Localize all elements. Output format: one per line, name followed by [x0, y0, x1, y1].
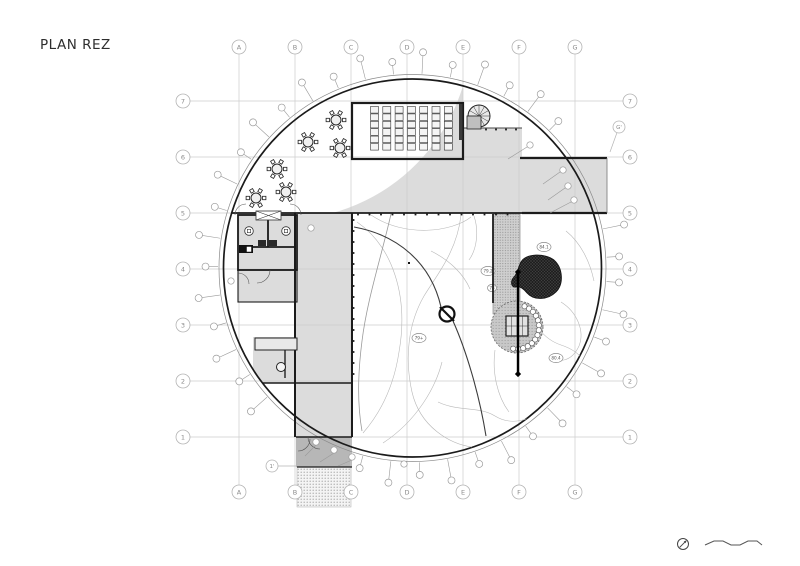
detail-marker-bubble	[196, 231, 203, 238]
floor-plan-canvas: AABBCCDDEEFFGG77665544332211G'1' 79.2787…	[0, 0, 800, 566]
column-tick	[353, 230, 355, 232]
classroom-desk	[420, 121, 428, 128]
classroom-desk	[432, 121, 440, 128]
classroom-desk	[444, 129, 452, 136]
sink-inset	[247, 247, 252, 253]
floor-fill-layer	[232, 86, 607, 507]
floor-plan-drawing: AABBCCDDEEFFGG77665544332211G'1' 79.2787…	[0, 0, 800, 566]
column-tick	[484, 214, 486, 216]
grid-bubble-label: 2	[181, 377, 185, 385]
grid-bubble-label: G	[572, 488, 577, 496]
detail-marker-bubble	[389, 58, 396, 65]
terrain-contour-line	[431, 251, 470, 289]
entry-vestibule-slab	[296, 437, 352, 467]
column-tick	[505, 129, 507, 131]
round-table	[281, 187, 291, 197]
terrain-contour-line	[469, 216, 477, 260]
pebble-circle	[536, 328, 541, 333]
detail-marker-bubble	[508, 457, 515, 464]
note-bubble	[349, 454, 355, 460]
round-table	[331, 115, 341, 125]
detail-marker-bubble	[356, 465, 363, 472]
column-tick	[403, 214, 405, 216]
classroom-desk	[371, 114, 379, 121]
classroom-desk	[383, 121, 391, 128]
chair	[330, 125, 335, 130]
dining-table-group	[246, 189, 266, 208]
classroom-desk	[407, 114, 415, 121]
chair	[338, 111, 343, 116]
chair	[302, 133, 307, 138]
column-tick	[392, 214, 394, 216]
detail-marker-bubble	[416, 471, 423, 478]
grid-bubble-label: B	[293, 43, 297, 51]
detail-marker-bubble	[621, 221, 628, 228]
terrain-contour-line	[556, 302, 581, 360]
chair	[342, 139, 347, 144]
classroom-desk	[444, 136, 452, 143]
column-tick	[353, 252, 355, 254]
column-tick	[507, 214, 509, 216]
grid-bubble-label: A	[237, 43, 242, 51]
chair	[334, 139, 339, 144]
round-table	[303, 137, 313, 147]
dining-table-group	[276, 183, 296, 202]
chair	[258, 203, 263, 208]
classroom-desk	[395, 114, 403, 121]
column-tick	[353, 329, 355, 331]
column-tick	[461, 214, 463, 216]
column-or-stool	[277, 363, 286, 372]
grid-bubble-label: F	[517, 43, 521, 51]
column-tick	[353, 373, 355, 375]
chair	[280, 183, 285, 188]
detail-marker-bubble	[598, 370, 605, 377]
classroom-desk	[420, 144, 428, 151]
classroom-desk	[407, 121, 415, 128]
classroom-desk	[371, 144, 379, 151]
detail-marker-bubble	[210, 323, 217, 330]
aux-grid-bubble-label: 1'	[269, 464, 274, 470]
column-tick	[353, 296, 355, 298]
grid-bubble-label: F	[517, 488, 521, 496]
chair	[279, 174, 284, 179]
chair	[310, 133, 315, 138]
column-tick	[353, 307, 355, 309]
spot-level-label: 79+	[415, 336, 424, 341]
classroom-desk	[420, 129, 428, 136]
chair	[302, 147, 307, 152]
column-tick	[353, 362, 355, 364]
detail-marker-bubble	[559, 420, 566, 427]
column-tick	[438, 214, 440, 216]
detail-marker-bubble	[529, 433, 536, 440]
main-path-contour	[354, 227, 441, 307]
classroom-desk	[444, 114, 452, 121]
note-bubble	[527, 142, 533, 148]
classroom-duct-hatch	[459, 104, 463, 140]
classroom-desk	[444, 144, 452, 151]
classroom-desk	[395, 107, 403, 114]
column-tick	[353, 318, 355, 320]
grid-bubble-label: 1	[628, 433, 632, 441]
detail-marker-bubble	[247, 408, 254, 415]
chair	[267, 167, 270, 170]
main-path-contour	[453, 321, 486, 436]
classroom-desk	[407, 144, 415, 151]
classroom-desk	[432, 114, 440, 121]
classroom-desk	[407, 129, 415, 136]
page-title: PLAN REZ	[40, 37, 111, 53]
classroom-desk	[407, 107, 415, 114]
classroom-desk	[371, 121, 379, 128]
note-bubble	[401, 461, 407, 467]
classroom-desk	[432, 136, 440, 143]
dining-table-group	[330, 139, 350, 158]
column-tick	[353, 340, 355, 342]
column-tick	[357, 214, 359, 216]
classroom-desk	[395, 136, 403, 143]
grid-bubble-label: G	[572, 43, 577, 51]
grid-bubble-label: 1	[181, 433, 185, 441]
detail-marker-bubble	[298, 79, 305, 86]
chair	[330, 111, 335, 116]
courtyard-layer: 79.27879+84.180.4	[354, 214, 594, 447]
aux-grid-bubble-label: G'	[616, 125, 622, 131]
note-bubble	[565, 183, 571, 189]
note-bubble	[331, 447, 337, 453]
detail-marker-bubble	[620, 311, 627, 318]
classroom-desk	[383, 129, 391, 136]
detail-marker-bubble	[506, 82, 513, 89]
column-tick	[449, 214, 451, 216]
spot-level-label: 84.1	[539, 245, 549, 250]
chair	[258, 189, 263, 194]
detail-marker-bubble	[278, 104, 285, 111]
detail-marker-bubble	[616, 253, 623, 260]
detail-marker-bubble	[449, 61, 456, 68]
round-table	[272, 164, 282, 174]
chair	[276, 190, 279, 193]
classroom-desk	[444, 121, 452, 128]
chair	[271, 160, 276, 165]
chair	[280, 197, 285, 202]
chair	[326, 118, 329, 121]
classroom-desk	[444, 107, 452, 114]
grid-bubble-label: 3	[628, 321, 632, 329]
column-tick	[369, 214, 371, 216]
wash-basin	[282, 227, 291, 236]
column-tick	[380, 214, 382, 216]
detail-marker-bubble	[237, 149, 244, 156]
detail-marker-bubble	[385, 479, 392, 486]
chair	[288, 183, 293, 188]
detail-marker-bubble	[213, 355, 220, 362]
grid-bubble-label: 3	[181, 321, 185, 329]
pebble-circle	[521, 346, 526, 351]
terrain-contour-line	[438, 402, 546, 421]
detail-marker-bubble	[537, 91, 544, 98]
chair	[343, 118, 346, 121]
column-tick	[426, 214, 428, 216]
detail-marker-bubble	[195, 295, 202, 302]
grid-bubble-label: D	[404, 488, 409, 496]
column-tick	[515, 129, 517, 131]
round-table	[335, 143, 345, 153]
classroom-desk	[432, 129, 440, 136]
classroom-desk	[383, 114, 391, 121]
note-bubble	[313, 439, 319, 445]
stair-landing-box	[467, 116, 481, 129]
column-tick	[353, 351, 355, 353]
spot-level-label: 79.2	[483, 269, 493, 274]
grid-bubble-label: B	[293, 488, 297, 496]
grid-bubble-label: E	[461, 488, 465, 496]
detail-marker-bubble	[615, 279, 622, 286]
classroom-desk	[383, 107, 391, 114]
north-arrow-and-scalebar	[678, 539, 763, 550]
grid-bubble-label: 7	[181, 97, 185, 105]
terrain-contour-line	[359, 214, 391, 431]
east-wing-slab	[520, 158, 607, 213]
classroom-desk	[383, 136, 391, 143]
grid-bubble-label: 5	[181, 209, 185, 217]
classroom-desk	[371, 129, 379, 136]
classroom-desk	[395, 129, 403, 136]
pebble-circle	[511, 346, 516, 351]
detail-marker-bubble	[357, 55, 364, 62]
detail-marker-bubble	[481, 61, 488, 68]
terrain-contour-line	[383, 362, 442, 443]
chair	[284, 167, 287, 170]
section-cut-marker	[515, 371, 521, 377]
column-tick	[353, 241, 355, 243]
detail-marker-bubble	[214, 171, 221, 178]
dining-table-group	[326, 111, 346, 130]
grid-bubble-label: C	[349, 488, 354, 496]
classroom-desk	[407, 136, 415, 143]
grid-bubble-label: 6	[181, 153, 185, 161]
grid-bubble-label: 4	[628, 265, 632, 273]
classroom-desk	[383, 144, 391, 151]
chair	[330, 146, 333, 149]
chair	[271, 174, 276, 179]
column-tick	[353, 219, 355, 221]
pebble-circle	[535, 318, 540, 323]
note-bubble	[560, 167, 566, 173]
column-tick	[353, 263, 355, 265]
grid-bubble-label: 4	[181, 265, 185, 273]
classroom-desk	[432, 144, 440, 151]
wc-fixture	[269, 240, 277, 246]
detail-marker-bubble	[249, 119, 256, 126]
detail-marker-bubble	[211, 203, 218, 210]
classroom-desk	[432, 107, 440, 114]
chair	[347, 146, 350, 149]
terrain-contour-line	[566, 231, 594, 281]
column-tick	[495, 129, 497, 131]
note-bubble	[308, 225, 314, 231]
grid-bubble-label: D	[404, 43, 409, 51]
round-table	[251, 193, 261, 203]
classroom-desk	[371, 136, 379, 143]
note-bubble	[571, 197, 577, 203]
detail-marker-bubble	[476, 460, 483, 467]
grid-bubble-label: 2	[628, 377, 632, 385]
south-walkway-paving	[297, 467, 351, 507]
detail-marker-bubble	[420, 49, 427, 56]
detail-marker-bubble	[202, 263, 209, 270]
courtyard-clipped: 79.27879+84.180.4	[354, 214, 594, 447]
wash-basin	[245, 227, 254, 236]
column-tick	[415, 214, 417, 216]
grid-bubble-label: 5	[628, 209, 632, 217]
chair	[263, 196, 266, 199]
detail-marker-bubble	[236, 378, 243, 385]
classroom-desk	[371, 107, 379, 114]
chair	[288, 197, 293, 202]
wc-fixture	[258, 240, 266, 246]
garden-path-strip	[493, 214, 520, 314]
detail-marker-bubble	[330, 73, 337, 80]
terrain-contour-line	[371, 215, 471, 230]
graphic-scale-bar	[705, 541, 762, 545]
column-tick	[495, 214, 497, 216]
classroom-desk	[420, 114, 428, 121]
grid-bubble-label: 7	[628, 97, 632, 105]
chair	[310, 147, 315, 152]
chair	[250, 203, 255, 208]
column-tick	[472, 214, 474, 216]
column-tick	[353, 274, 355, 276]
classroom-desk	[395, 121, 403, 128]
classroom-desk	[420, 107, 428, 114]
detail-marker-bubble	[573, 391, 580, 398]
chair	[279, 160, 284, 165]
classroom-desk	[395, 144, 403, 151]
chair	[293, 190, 296, 193]
grid-bubble-label: A	[237, 488, 242, 496]
column-tick	[485, 129, 487, 131]
detail-marker-bubble	[603, 338, 610, 345]
classroom-desk	[420, 136, 428, 143]
chair	[298, 140, 301, 143]
detail-marker-bubble	[448, 477, 455, 484]
chair	[338, 125, 343, 130]
grid-bubble-label: E	[461, 43, 465, 51]
chair	[315, 140, 318, 143]
reception-counter	[255, 338, 297, 350]
dining-table-group	[267, 160, 287, 179]
note-bubble	[228, 278, 234, 284]
pebble-circle	[536, 323, 541, 328]
dining-table-group	[298, 133, 318, 152]
chair	[250, 189, 255, 194]
grid-bubble-label: C	[349, 43, 354, 51]
grid-bubble-label: 6	[628, 153, 632, 161]
survey-point-dot	[408, 262, 410, 264]
terrain-contour-line	[408, 215, 472, 447]
column-tick	[353, 285, 355, 287]
chair	[246, 196, 249, 199]
detail-marker-bubble	[555, 118, 562, 125]
spot-level-label: 80.4	[551, 356, 561, 361]
